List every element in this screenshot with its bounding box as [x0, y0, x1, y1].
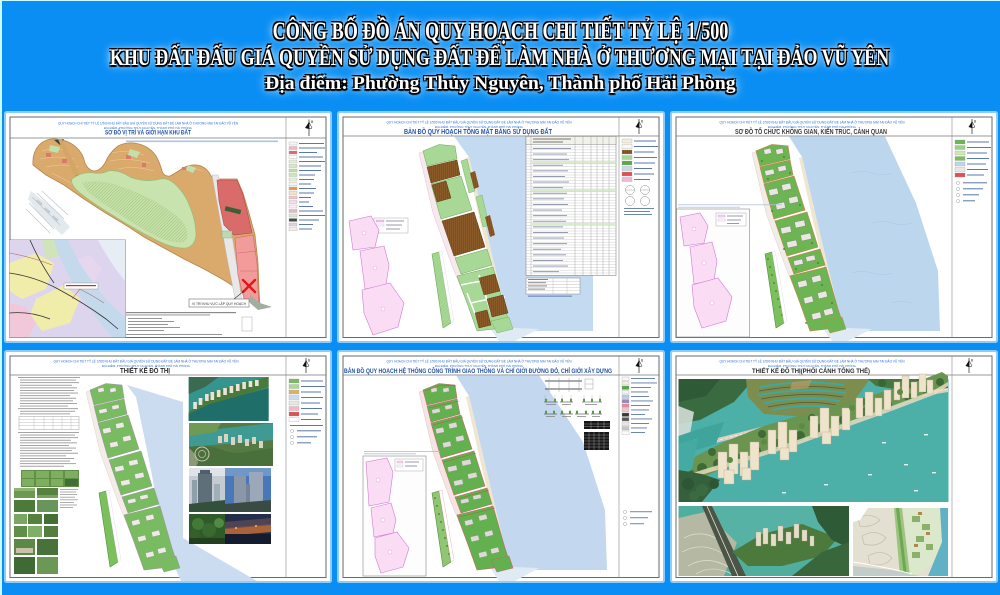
svg-text:B: B: [311, 120, 314, 124]
svg-text:B: B: [308, 359, 310, 363]
svg-text:QUY HOẠCH CHI TIẾT TỶ LỆ 1/500: QUY HOẠCH CHI TIẾT TỶ LỆ 1/500 KHU ĐẤT Đ…: [720, 359, 905, 364]
svg-text:B: B: [974, 120, 976, 124]
svg-text:QUY HOẠCH CHI TIẾT TỶ LỆ 1/500: QUY HOẠCH CHI TIẾT TỶ LỆ 1/500 KHU ĐẤT Đ…: [54, 359, 239, 364]
svg-text:VỊ TRÍ KHU VỰC LẬP QUY HOẠCH: VỊ TRÍ KHU VỰC LẬP QUY HOẠCH: [192, 302, 246, 306]
svg-text:QUY HOẠCH CHI TIẾT TỶ LỆ 1/500: QUY HOẠCH CHI TIẾT TỶ LỆ 1/500 KHU ĐẤT Đ…: [58, 121, 238, 126]
svg-text:B: B: [641, 120, 643, 124]
svg-text:QUY HOẠCH CHI TIẾT TỶ LỆ 1/500: QUY HOẠCH CHI TIẾT TỶ LỆ 1/500 KHU ĐẤT Đ…: [387, 359, 572, 364]
svg-text:QUY HOẠCH CHI TIẾT TỶ LỆ 1/500: QUY HOẠCH CHI TIẾT TỶ LỆ 1/500 KHU ĐẤT Đ…: [720, 120, 905, 125]
svg-text:SƠ ĐỒ VỊ TRÍ VÀ GIỚI HẠN KHU Đ: SƠ ĐỒ VỊ TRÍ VÀ GIỚI HẠN KHU ĐẤT: [105, 128, 191, 136]
svg-text:B: B: [971, 359, 973, 363]
svg-text:B: B: [641, 359, 643, 363]
svg-text:QUY HOẠCH CHI TIẾT TỶ LỆ 1/500: QUY HOẠCH CHI TIẾT TỶ LỆ 1/500 KHU ĐẤT Đ…: [387, 120, 572, 125]
